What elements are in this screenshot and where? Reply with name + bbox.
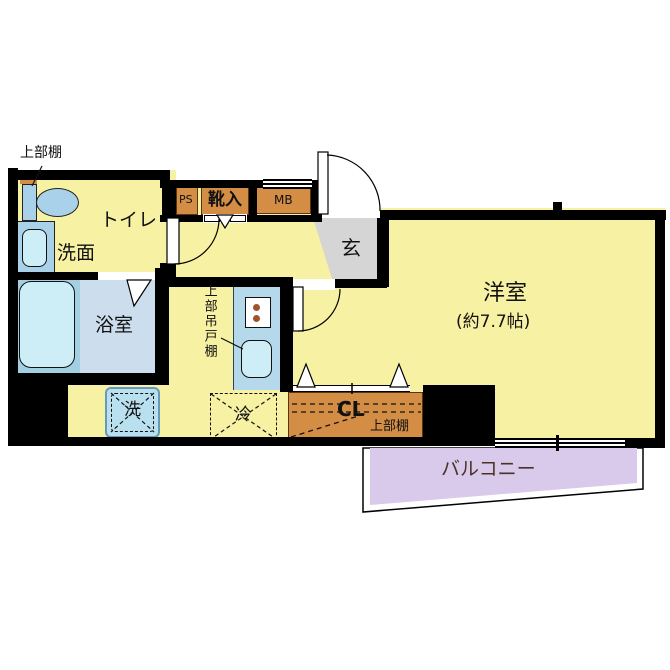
toilet-label: トイレ bbox=[100, 211, 157, 231]
bathroom-label: 浴室 bbox=[95, 316, 133, 336]
kitchen-door-opening bbox=[293, 279, 335, 290]
entrance-label: 玄 bbox=[341, 238, 361, 259]
wall-below-mb bbox=[247, 215, 322, 222]
toilet-bowl bbox=[36, 188, 79, 217]
floor-plan: 上部棚 トイレ 洗面 浴室 PS 靴入 MB 玄 洋室 (約7.7帖) 上部吊戸… bbox=[0, 0, 670, 670]
balcony-window-line bbox=[495, 438, 625, 440]
wall-top-washroom bbox=[8, 170, 170, 180]
wall-closet-right-chunk bbox=[423, 385, 495, 445]
washroom-label: 洗面 bbox=[57, 244, 95, 264]
ps-label: PS bbox=[179, 194, 193, 206]
stove bbox=[245, 297, 271, 328]
closet-label: CL bbox=[337, 399, 364, 420]
wall-shoe-mb-divider bbox=[249, 180, 257, 215]
bathtub bbox=[19, 281, 75, 368]
stove-burner bbox=[253, 304, 260, 311]
wall-top-notch bbox=[553, 202, 562, 211]
wall-right bbox=[655, 213, 665, 448]
washbasin-sink bbox=[22, 229, 47, 267]
balcony-window-line bbox=[495, 442, 625, 444]
mb-window-line bbox=[263, 187, 312, 189]
western-room-size-label: (約7.7帖) bbox=[456, 314, 530, 332]
wall-top-hall bbox=[160, 180, 263, 188]
mb-window-line bbox=[263, 179, 312, 181]
meter-box-label: MB bbox=[274, 194, 293, 207]
toilet-tank bbox=[22, 184, 37, 221]
wall-kitchen-right bbox=[280, 277, 293, 392]
mb-window-line bbox=[263, 183, 312, 185]
wall-top-main bbox=[380, 210, 666, 220]
shoe-door-panel bbox=[230, 215, 246, 222]
balcony-label: バルコニー bbox=[441, 460, 536, 480]
fridge-label: 冷 bbox=[235, 407, 252, 425]
front-door-opening bbox=[322, 206, 380, 218]
washer-label: 洗 bbox=[124, 402, 141, 420]
upper-shelf-toilet-label: 上部棚 bbox=[20, 146, 62, 161]
wall-bottom-right-corner bbox=[625, 438, 663, 448]
kitchen-sink bbox=[241, 340, 272, 378]
balcony-window-line bbox=[495, 446, 625, 448]
hanging-cabinet-label: 上部吊戸棚 bbox=[202, 284, 216, 359]
stove-burner bbox=[253, 315, 260, 322]
shoe-cabinet-label: 靴入 bbox=[208, 192, 242, 210]
balcony-window-tick bbox=[556, 435, 559, 451]
wall-bath-divider bbox=[8, 272, 98, 280]
wall-kitchen-top bbox=[162, 277, 293, 287]
wall-entrance-right bbox=[377, 217, 389, 287]
wall-bottom bbox=[8, 437, 495, 446]
bath-door-opening bbox=[98, 272, 155, 280]
wall-below-ps-shoe bbox=[160, 215, 203, 222]
closet-door-track bbox=[293, 385, 410, 392]
wall-below-bathroom bbox=[8, 373, 168, 385]
western-room-label: 洋室 bbox=[483, 282, 527, 305]
wall-bottom-left-chunk bbox=[8, 385, 68, 440]
shoe-door-panel bbox=[204, 215, 220, 222]
upper-shelf-closet-label: 上部棚 bbox=[370, 420, 409, 434]
